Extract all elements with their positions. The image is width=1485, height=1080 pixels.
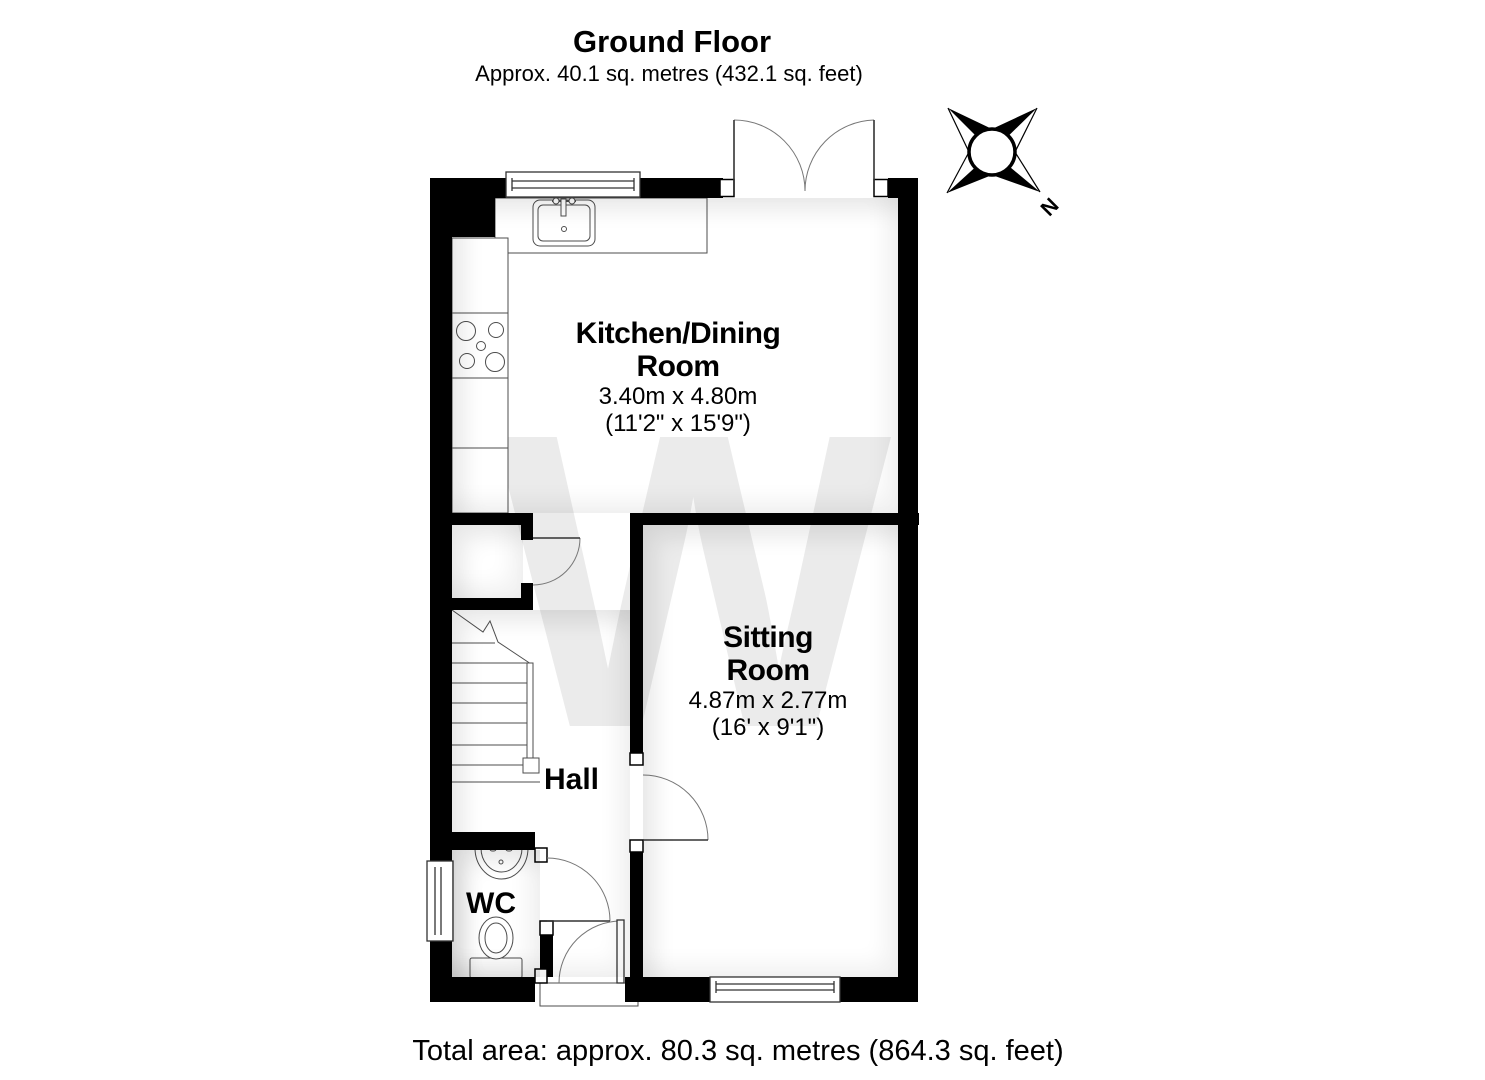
kitchen-room-dims-imperial: (11'2" x 15'9") — [576, 410, 781, 437]
sitting-room-name-line1: Sitting — [689, 621, 848, 654]
sitting-room-window — [710, 977, 840, 1002]
sitting-room-name-line2: Room — [689, 654, 848, 687]
kitchen-dining-room-label: Kitchen/Dining Room 3.40m x 4.80m (11'2"… — [576, 317, 781, 437]
sitting-room-dims-metric: 4.87m x 2.77m — [689, 687, 848, 714]
sitting-room-dims-imperial: (16' x 9'1") — [689, 714, 848, 741]
front-door — [559, 920, 624, 983]
staircase — [452, 610, 540, 782]
page-title: Ground Floor — [573, 24, 771, 60]
total-area-footer: Total area: approx. 80.3 sq. metres (864… — [412, 1035, 1063, 1068]
wc-door — [547, 858, 610, 921]
kitchen-hob — [452, 313, 508, 378]
front-door-threshold — [540, 983, 638, 1006]
kitchen-window — [506, 172, 640, 197]
sitting-room-label: Sitting Room 4.87m x 2.77m (16' x 9'1") — [689, 621, 848, 741]
compass-rose — [947, 108, 1040, 193]
page-subtitle: Approx. 40.1 sq. metres (432.1 sq. feet) — [475, 61, 863, 87]
wc-window — [427, 861, 453, 941]
kitchen-sink — [533, 198, 595, 246]
kitchen-room-name-line2: Room — [576, 350, 781, 383]
kitchen-room-dims-metric: 3.40m x 4.80m — [576, 383, 781, 410]
floorplan-drawing — [0, 0, 1485, 1080]
wc-toilet — [470, 917, 522, 978]
sitting-room-door — [643, 775, 708, 840]
wc-label: WC — [466, 887, 516, 921]
kitchen-room-name-line1: Kitchen/Dining — [576, 317, 781, 350]
french-doors — [734, 120, 874, 191]
floorplan-page: W — [0, 0, 1485, 1080]
door-jambs — [535, 180, 888, 984]
cupboard-door — [533, 538, 580, 585]
hall-label: Hall — [544, 763, 599, 797]
